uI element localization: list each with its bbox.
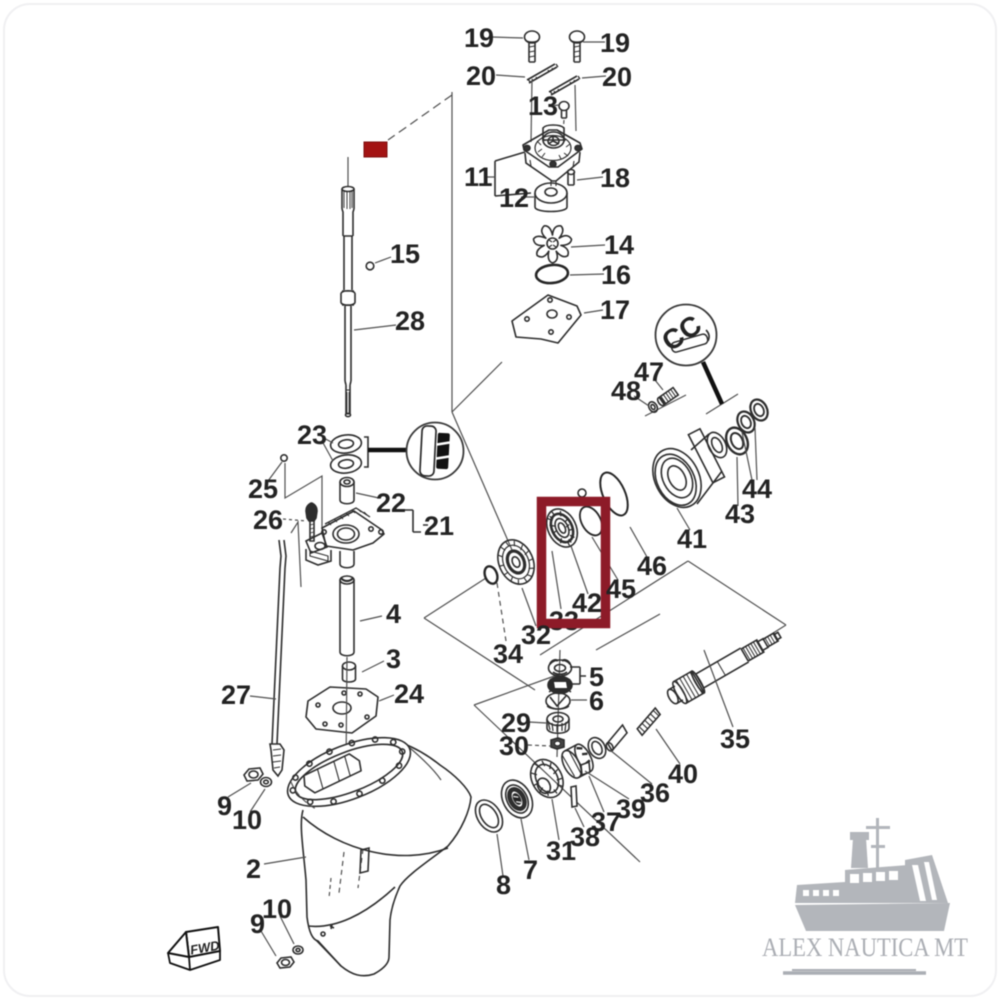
svg-text:6: 6 [589,686,604,716]
svg-text:20: 20 [602,62,632,92]
svg-text:21: 21 [424,511,454,541]
svg-text:14: 14 [604,230,634,260]
svg-text:3: 3 [386,644,401,674]
svg-text:16: 16 [601,260,631,290]
svg-text:35: 35 [720,724,750,754]
svg-text:40: 40 [668,759,698,789]
svg-text:30: 30 [499,731,529,761]
svg-text:44: 44 [742,474,772,504]
svg-text:18: 18 [600,163,630,193]
svg-text:10: 10 [262,894,292,924]
svg-text:26: 26 [253,505,283,535]
svg-text:20: 20 [466,61,496,91]
svg-text:32: 32 [521,620,551,650]
svg-text:12: 12 [499,183,529,213]
svg-text:28: 28 [395,306,425,336]
svg-text:4: 4 [386,599,401,629]
svg-text:19: 19 [464,23,494,53]
svg-text:42: 42 [572,588,602,618]
svg-text:19: 19 [600,28,630,58]
svg-text:24: 24 [394,679,424,709]
svg-text:7: 7 [523,855,538,885]
svg-text:22: 22 [376,488,406,518]
svg-text:45: 45 [606,574,636,604]
svg-text:15: 15 [390,239,420,269]
svg-text:48: 48 [611,376,641,406]
svg-text:8: 8 [496,870,511,900]
svg-text:46: 46 [637,551,667,581]
svg-text:36: 36 [640,778,670,808]
svg-text:11: 11 [464,162,493,192]
svg-text:17: 17 [600,295,630,325]
svg-text:34: 34 [493,639,523,669]
svg-text:2: 2 [246,854,261,884]
svg-text:41: 41 [677,524,707,554]
svg-text:13: 13 [528,91,558,121]
svg-text:9: 9 [250,909,265,939]
svg-text:25: 25 [248,474,278,504]
svg-text:ALEX NAUTICA MT: ALEX NAUTICA MT [762,933,968,962]
svg-text:23: 23 [297,420,327,450]
svg-text:10: 10 [232,805,262,835]
svg-text:27: 27 [221,680,251,710]
svg-text:9: 9 [217,791,232,821]
